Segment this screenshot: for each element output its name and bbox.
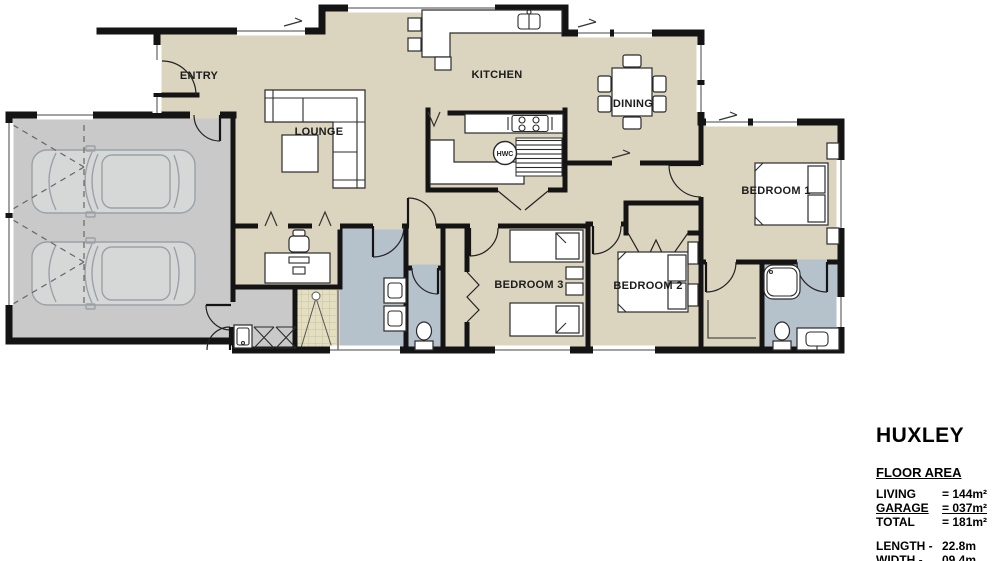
area-value: = 181m² xyxy=(942,515,987,529)
entry-label: ENTRY xyxy=(180,70,219,82)
bar-stool-3 xyxy=(435,57,451,70)
single-bed-1 xyxy=(510,230,583,262)
tiled-shower xyxy=(297,289,336,350)
area-value: = 037m² xyxy=(942,501,987,515)
dimension-row-length: LENGTH - 22.8m xyxy=(876,539,1000,553)
floor-plan: HWC xyxy=(0,0,1000,561)
window-entry-upper xyxy=(153,45,162,60)
garage-floor xyxy=(9,115,233,341)
bedroom2-fixtures xyxy=(618,242,698,312)
window-bedroom3-bottom xyxy=(495,346,570,355)
dimension-value: 09.4m xyxy=(942,553,976,561)
garage-door-1 xyxy=(5,123,14,213)
vanity-basin-2 xyxy=(384,306,406,331)
window-bedroom1-top-2 xyxy=(753,118,797,127)
nightstand xyxy=(827,228,839,244)
bedroom1-label: BEDROOM 1 xyxy=(741,185,810,197)
shower-icon xyxy=(764,265,800,299)
title-block: HUXLEY FLOOR AREA LIVING = 144m² GARAGE … xyxy=(876,424,1000,561)
laundry-tub-icon xyxy=(234,325,252,348)
coffee-table xyxy=(282,135,318,172)
window-bedroom2-bottom xyxy=(593,346,655,355)
window-lounge-top xyxy=(237,27,305,36)
lounge-label: LOUNGE xyxy=(295,126,344,138)
window-garage-top xyxy=(37,111,93,120)
floor-area-heading: FLOOR AREA xyxy=(876,465,1000,480)
area-label: LIVING xyxy=(876,487,942,501)
bar-stool-2 xyxy=(408,38,421,51)
nightstand xyxy=(827,143,839,159)
window-ensuite-right xyxy=(837,297,846,327)
area-row-garage: GARAGE = 037m² xyxy=(876,501,1000,515)
window-bedroom1-top-1 xyxy=(706,118,748,127)
area-label: GARAGE xyxy=(876,501,942,515)
pantry-shelves xyxy=(516,138,562,176)
window-dining-right-1 xyxy=(697,45,706,80)
nightstand xyxy=(688,284,698,306)
window-dining-top-1 xyxy=(578,29,610,38)
window-bathroom-bottom xyxy=(330,346,400,355)
bedroom3-label: BEDROOM 3 xyxy=(494,279,563,291)
bedroom2-label: BEDROOM 2 xyxy=(613,280,682,292)
dimension-label: WIDTH - xyxy=(876,553,942,561)
toilet-icon xyxy=(773,322,791,350)
floor-plan-page: HWC xyxy=(0,0,1000,561)
car-2-icon xyxy=(32,238,195,309)
nightstand xyxy=(566,267,583,279)
window-entry-lower xyxy=(153,97,162,113)
wc-fixtures xyxy=(415,322,433,350)
dimension-row-width: WIDTH - 09.4m xyxy=(876,553,1000,561)
hot-water-cylinder-icon: HWC xyxy=(494,142,517,165)
dimension-label: LENGTH - xyxy=(876,539,942,553)
plan-title: HUXLEY xyxy=(876,424,1000,448)
nightstand xyxy=(566,283,583,295)
car-1-icon xyxy=(32,146,195,217)
area-value: = 144m² xyxy=(942,487,987,501)
window-dining-right-2 xyxy=(697,85,706,112)
single-bed-2 xyxy=(510,303,583,336)
dining-label: DINING xyxy=(613,98,653,110)
area-row-total: TOTAL = 181m² xyxy=(876,515,1000,529)
dimension-value: 22.8m xyxy=(942,539,976,553)
vanity-basin-1 xyxy=(384,278,406,303)
kitchen-label: KITCHEN xyxy=(472,69,523,81)
hwc-label: HWC xyxy=(497,151,514,158)
window-bedroom1-right xyxy=(837,160,846,228)
garage-door-2 xyxy=(5,218,14,305)
vanity-basin xyxy=(797,328,839,350)
area-row-living: LIVING = 144m² xyxy=(876,487,1000,501)
desk-chair xyxy=(289,236,309,252)
window-dining-top-2 xyxy=(614,29,652,38)
bar-stool-1 xyxy=(408,18,421,31)
nightstand xyxy=(688,242,698,264)
toilet-icon xyxy=(415,322,433,350)
area-label: TOTAL xyxy=(876,515,942,529)
